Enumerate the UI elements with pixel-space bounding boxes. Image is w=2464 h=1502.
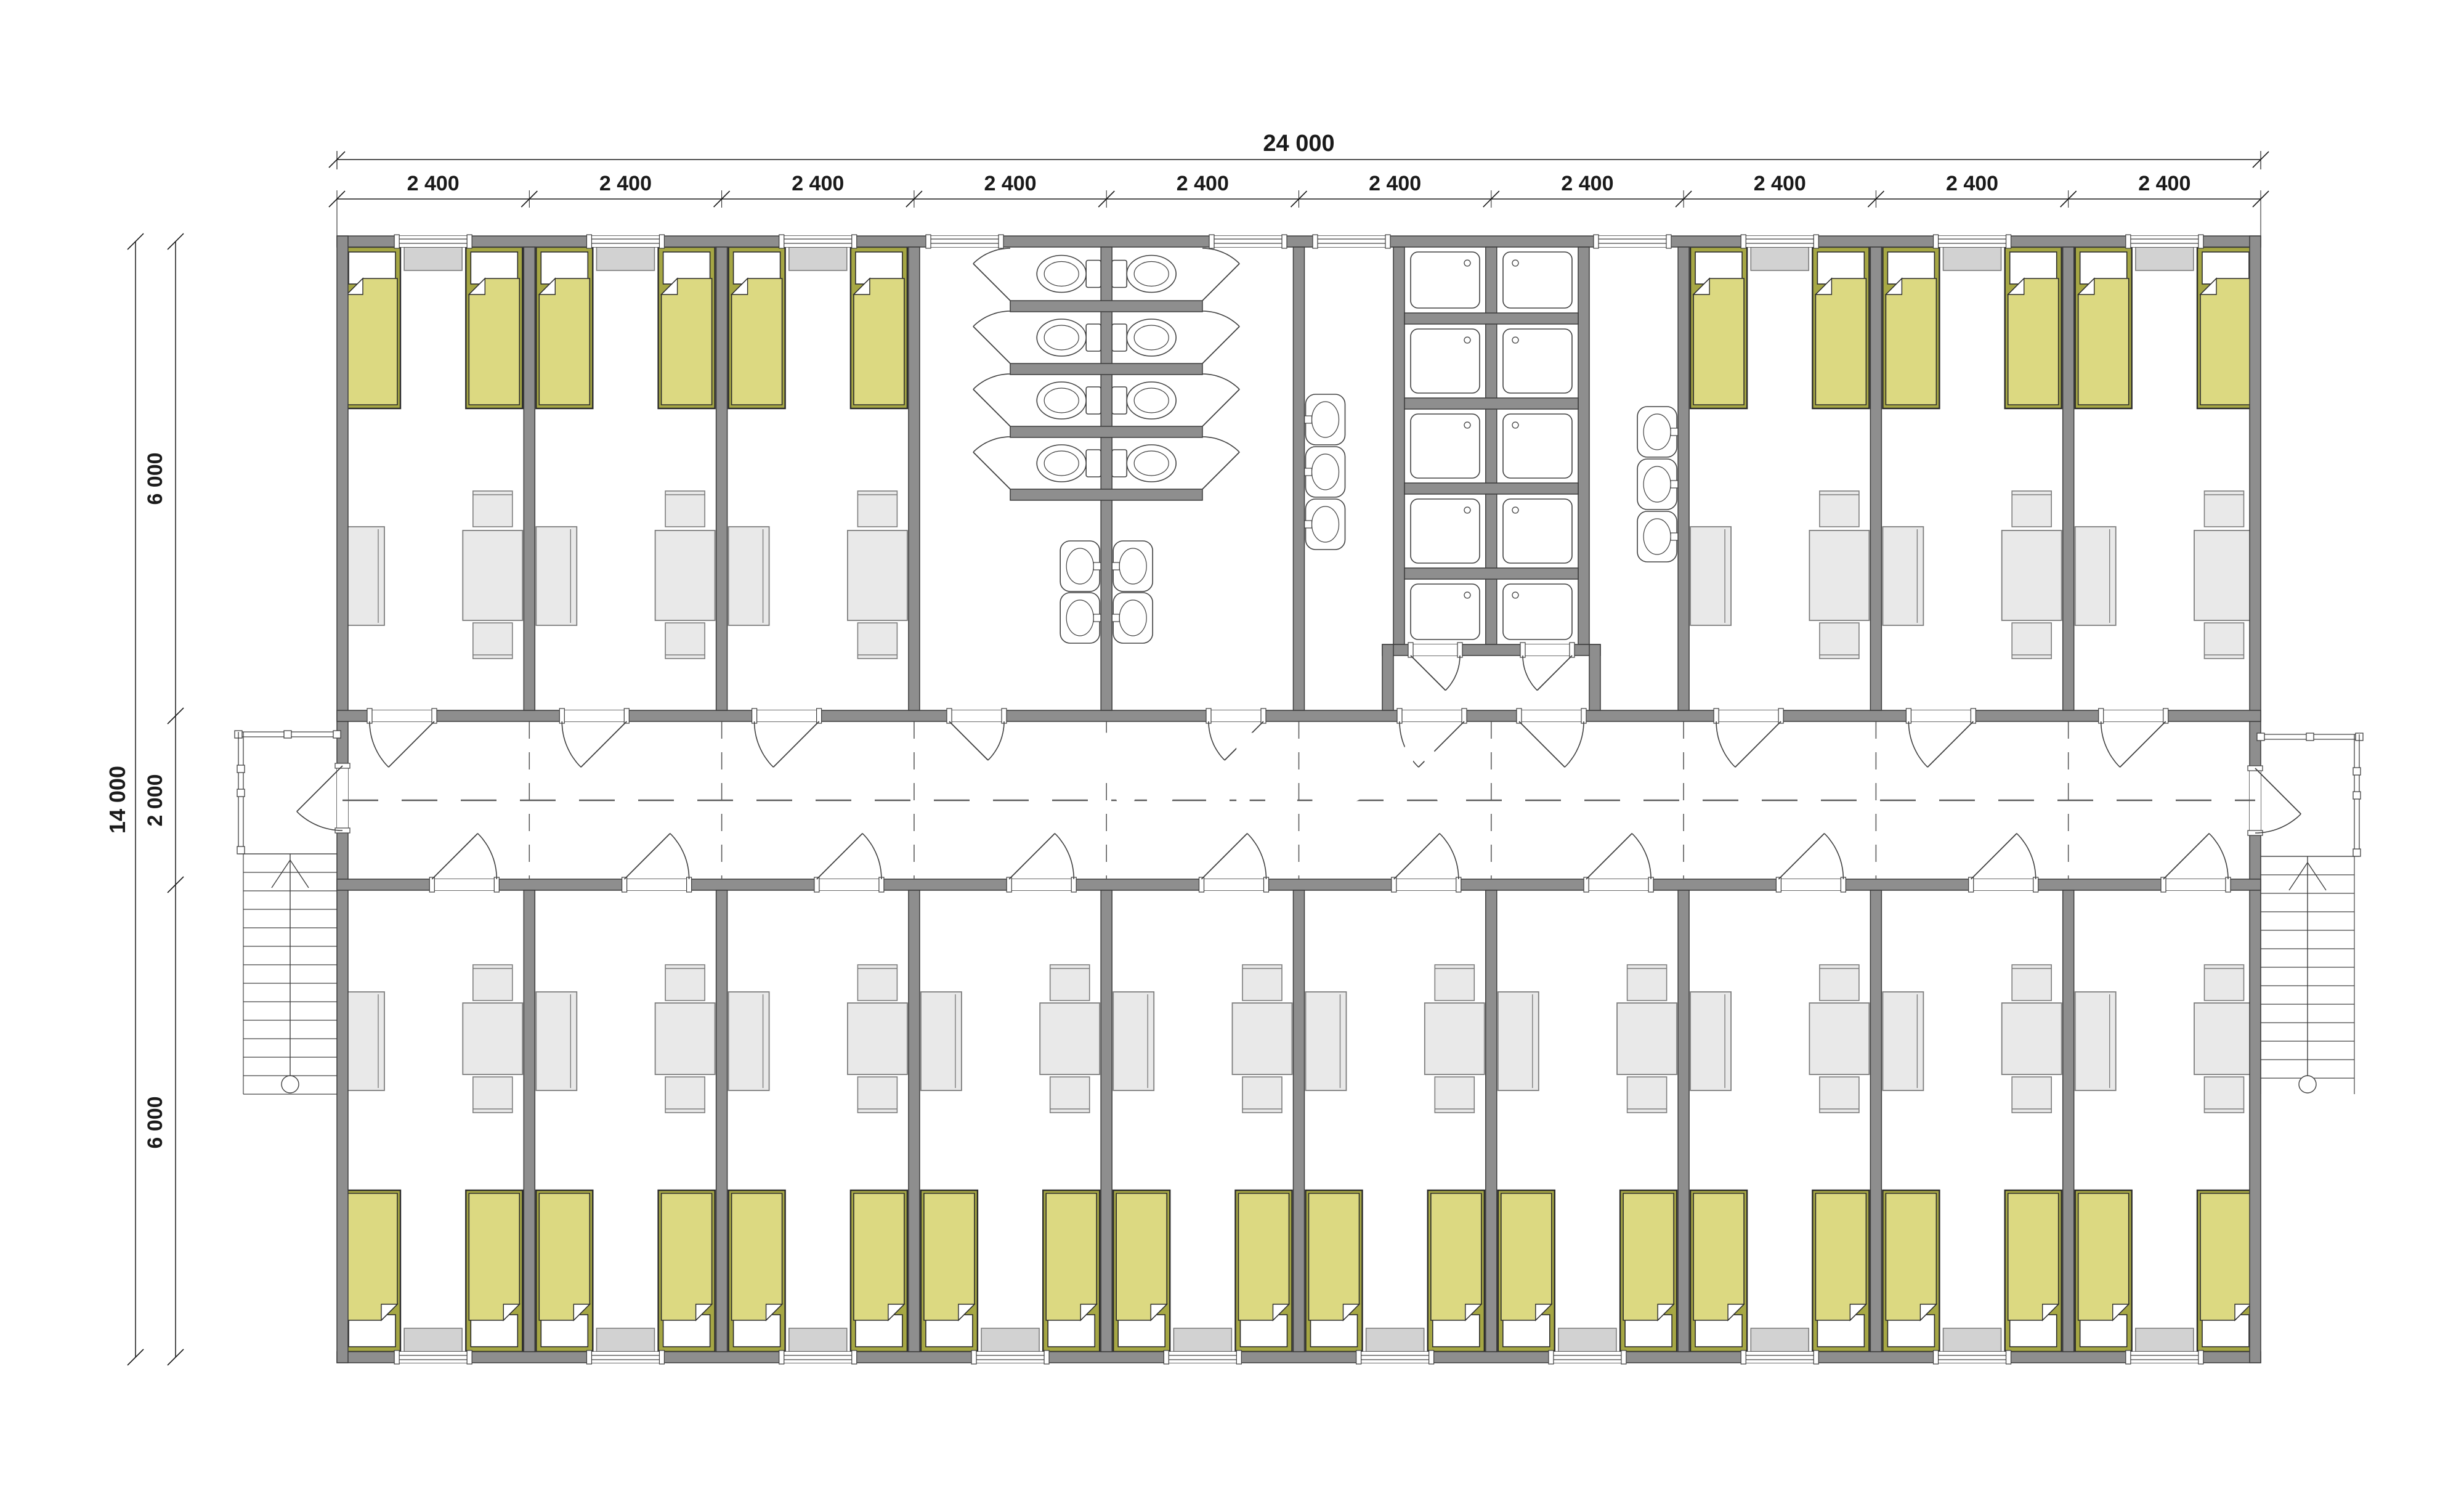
chair [857, 1077, 897, 1113]
toilet-cistern [1086, 387, 1101, 414]
bed-blanket [854, 278, 904, 405]
door-swing-arc [1247, 834, 1266, 879]
door-opening [1519, 710, 1584, 721]
window-cabinet [1751, 1328, 1809, 1352]
door-opening [1586, 879, 1651, 890]
table [463, 1003, 522, 1074]
door-jamb [926, 235, 931, 248]
door-leaf [389, 721, 434, 767]
dimension-label-module: 2 400 [599, 172, 652, 195]
chair [1627, 1077, 1667, 1113]
door-swing-arc [755, 721, 774, 767]
window-opening [1596, 236, 1669, 247]
washbasin-faucet [1093, 614, 1101, 622]
door-jamb [432, 708, 437, 723]
window-opening [2128, 236, 2201, 247]
chair [473, 965, 513, 1001]
door-leaf [973, 389, 1010, 426]
railing-post [237, 846, 245, 854]
door-swing-arc [973, 374, 1010, 389]
table [1809, 1003, 1869, 1074]
shower-drain [1464, 337, 1470, 343]
toilet-cistern [1112, 324, 1127, 351]
shower-spine-wall [1486, 247, 1497, 644]
dimension-label-segment: 6 000 [144, 1096, 167, 1148]
shower-drain [1512, 337, 1518, 343]
bed-blanket [2200, 1193, 2251, 1320]
bed-blanket [1116, 1193, 1167, 1320]
door-opening [1411, 644, 1460, 656]
door-jamb [1741, 235, 1746, 248]
door-leaf [1202, 389, 1239, 426]
door-jamb [1397, 708, 1402, 723]
floor-plan-drawing: 24 0002 4002 4002 4002 4002 4002 4002 40… [0, 0, 2464, 1502]
dimension-label-segment: 2 000 [144, 774, 167, 826]
bed-blanket [2008, 278, 2059, 405]
door-opening [2163, 879, 2228, 890]
door-jamb [1282, 235, 1287, 248]
shower-stall-wall [1404, 568, 1578, 579]
bed-blanket [1239, 1193, 1289, 1320]
partition-wall-top-band [2063, 247, 2074, 710]
window-cabinet [1751, 247, 1809, 270]
bed-blanket [732, 1193, 782, 1320]
table [1425, 1003, 1485, 1074]
door-swing-arc [670, 834, 689, 879]
door-leaf [1778, 834, 1824, 879]
door-leaf [1394, 834, 1440, 879]
door-opening [1009, 879, 1074, 890]
door-swing-arc [973, 437, 1010, 452]
door-opening [817, 879, 881, 890]
door-jamb [2006, 1350, 2011, 1364]
door-leaf [625, 834, 670, 879]
bed-blanket [347, 278, 397, 405]
door-jamb [1666, 235, 1671, 248]
door-jamb [2099, 708, 2104, 723]
railing-post [2353, 792, 2361, 799]
door-leaf [1519, 721, 1565, 767]
door-swing-arc [1825, 834, 1844, 879]
washbasin-faucet [1305, 468, 1312, 476]
door-leaf [1971, 834, 2017, 879]
partition-wall-bottom-band [716, 890, 727, 1352]
window-cabinet [596, 247, 654, 270]
window-cabinet [2136, 247, 2194, 270]
window-cabinet [404, 1328, 462, 1352]
door-jamb [1570, 643, 1574, 657]
door-opening [337, 766, 348, 830]
window-opening [974, 1352, 1047, 1363]
window-opening [589, 1352, 662, 1363]
door-jamb [852, 1350, 857, 1364]
dimension-label-module: 2 400 [1946, 172, 1998, 195]
bed-blanket [732, 278, 782, 405]
door-jamb [687, 877, 692, 892]
door-jamb [1261, 708, 1266, 723]
partition-wall-top-band [1294, 247, 1305, 710]
door-jamb [1594, 235, 1599, 248]
door-jamb [1236, 1350, 1241, 1364]
chair [1820, 491, 1859, 527]
railing-post [237, 789, 245, 797]
door-jamb [1714, 708, 1719, 723]
bed-blanket [2008, 1193, 2059, 1320]
chair [857, 491, 897, 527]
door-jamb [1002, 708, 1007, 723]
door-jamb [1814, 235, 1818, 248]
dimension-label-module: 2 400 [792, 172, 844, 195]
door-opening [1523, 644, 1572, 656]
dimension-label-module: 2 400 [984, 172, 1037, 195]
door-swing-arc [1202, 248, 1239, 264]
window-cabinet [596, 1328, 654, 1352]
chair [665, 491, 705, 527]
door-jamb [659, 1350, 664, 1364]
table [1809, 530, 1869, 620]
chair [1820, 623, 1859, 659]
railing-post [2306, 733, 2314, 741]
table [1040, 1003, 1100, 1074]
door-opening [562, 710, 626, 721]
window-cabinet [1173, 1328, 1231, 1352]
chair [665, 623, 705, 659]
washbasin-faucet [1112, 614, 1119, 622]
door-opening [1400, 710, 1464, 721]
door-swing-arc [973, 248, 1010, 264]
door-jamb [1906, 708, 1911, 723]
table [2194, 530, 2254, 620]
door-jamb [622, 877, 627, 892]
door-opening [949, 710, 1004, 721]
chair [1242, 1077, 1282, 1113]
chair [473, 491, 513, 527]
bed-blanket [1886, 278, 1936, 405]
stair-direction-arrow [2289, 863, 2308, 890]
stair-start-marker [282, 1076, 299, 1093]
door-jamb [817, 708, 822, 723]
door-jamb [1520, 643, 1525, 657]
bed-blanket [1815, 1193, 1866, 1320]
stair-start-marker [2299, 1076, 2316, 1093]
door-jamb [971, 1350, 976, 1364]
chair [2012, 965, 2051, 1001]
window-opening [1315, 236, 1388, 247]
table [2002, 1003, 2062, 1074]
toilet-cistern [1086, 324, 1101, 351]
chair [473, 623, 513, 659]
railing-post [333, 731, 341, 738]
door-jamb [1408, 643, 1413, 657]
dimension-label-module: 2 400 [1369, 172, 1421, 195]
chair [2012, 491, 2051, 527]
stair-direction-arrow [2308, 863, 2326, 890]
door-jamb [494, 877, 499, 892]
door-jamb [1462, 708, 1467, 723]
door-jamb [1385, 235, 1390, 248]
dimension-label-segment: 6 000 [144, 452, 167, 505]
door-opening [432, 879, 496, 890]
door-leaf [2120, 721, 2165, 767]
door-jamb [1648, 877, 1653, 892]
door-leaf [1735, 721, 1781, 767]
door-jamb [1392, 877, 1396, 892]
bed-blanket [469, 278, 519, 405]
chair [857, 965, 897, 1001]
bed-blanket [1815, 278, 1866, 405]
door-jamb [367, 708, 372, 723]
door-jamb [586, 235, 591, 248]
door-swing-arc [2101, 721, 2120, 767]
toilet-cistern [1112, 387, 1127, 414]
door-swing-arc [1523, 656, 1537, 691]
chair [1435, 1077, 1474, 1113]
door-jamb [1517, 708, 1522, 723]
partition-wall-bottom-band [1294, 890, 1305, 1352]
table [1617, 1003, 1677, 1074]
door-swing-arc [562, 721, 581, 767]
partition-wall-bottom-band [909, 890, 920, 1352]
door-swing-arc [1446, 656, 1460, 691]
window-opening [397, 1352, 469, 1363]
door-swing-arc [2255, 814, 2301, 833]
toilet-cistern [1112, 450, 1127, 477]
shower-stall-wall [1404, 398, 1578, 409]
door-jamb [2126, 1350, 2131, 1364]
shower-vestibule-wall [1382, 644, 1393, 710]
window-cabinet [1366, 1328, 1424, 1352]
dimension-label-module: 2 400 [1754, 172, 1806, 195]
bed-blanket [469, 1193, 519, 1320]
partition-wall-bottom-band [1486, 890, 1497, 1352]
bed-blanket [854, 1193, 904, 1320]
door-jamb [1044, 1350, 1049, 1364]
door-swing-arc [1716, 721, 1735, 767]
partition-wall-top-band [524, 247, 535, 710]
table [655, 530, 715, 620]
door-jamb [1934, 235, 1939, 248]
door-jamb [1778, 708, 1783, 723]
table [848, 1003, 907, 1074]
door-jamb [1071, 877, 1076, 892]
door-leaf [1586, 834, 1632, 879]
door-swing-arc [1908, 721, 1927, 767]
bed-blanket [662, 1193, 712, 1320]
door-jamb [659, 235, 664, 248]
door-swing-arc [1440, 834, 1459, 879]
shower-drain [1464, 260, 1470, 266]
partition-wall-top-band [1870, 247, 1881, 710]
partition-wall-bottom-band [2063, 890, 2074, 1352]
door-jamb [2199, 235, 2203, 248]
door-swing-arc [1202, 437, 1239, 452]
door-swing-arc [1055, 834, 1074, 879]
door-leaf [1927, 721, 1973, 767]
door-jamb [1264, 877, 1269, 892]
door-jamb [852, 235, 857, 248]
door-jamb [1814, 1350, 1818, 1364]
door-jamb [752, 708, 757, 723]
washbasin-faucet [1305, 416, 1312, 423]
bed-blanket [1431, 1193, 1481, 1320]
door-jamb [1457, 643, 1462, 657]
bed-blanket [1693, 278, 1744, 405]
window-opening [1551, 1352, 1624, 1363]
washbasin-faucet [1093, 562, 1101, 570]
door-jamb [1969, 877, 1974, 892]
door-jamb [1007, 877, 1011, 892]
railing-post [237, 765, 245, 773]
door-leaf [1009, 834, 1055, 879]
window-cabinet [1943, 1328, 2001, 1352]
door-leaf [1537, 656, 1572, 691]
chair [1050, 1077, 1090, 1113]
door-opening [1778, 879, 1843, 890]
door-jamb [1356, 1350, 1361, 1364]
table [2194, 1003, 2254, 1074]
toilet-cistern [1086, 450, 1101, 477]
window-opening [589, 236, 662, 247]
door-jamb [1549, 1350, 1554, 1364]
door-leaf [817, 834, 862, 879]
chair [2205, 491, 2244, 527]
window-opening [1166, 1352, 1239, 1363]
door-jamb [1621, 1350, 1626, 1364]
door-leaf [1202, 264, 1239, 301]
door-jamb [1206, 708, 1211, 723]
partition-wall-bottom-band [1101, 890, 1112, 1352]
window-cabinet [789, 1328, 847, 1352]
shower-drain [1464, 422, 1470, 428]
door-leaf [432, 834, 477, 879]
chair [2205, 623, 2244, 659]
door-jamb [1584, 877, 1589, 892]
door-jamb [1934, 1350, 1939, 1364]
door-jamb [1581, 708, 1586, 723]
window-opening [782, 236, 854, 247]
door-jamb [1164, 1350, 1169, 1364]
door-swing-arc [973, 311, 1010, 327]
door-swing-arc [862, 834, 881, 879]
shower-vestibule-wall [1589, 644, 1600, 710]
door-opening [1209, 710, 1263, 721]
door-jamb [2161, 877, 2166, 892]
window-cabinet [1558, 1328, 1616, 1352]
door-jamb [814, 877, 819, 892]
floor-plan-canvas: 24 0002 4002 4002 4002 4002 4002 4002 40… [0, 0, 2464, 1502]
door-swing-arc [1202, 374, 1239, 389]
partition-wall-top-band [1101, 247, 1112, 710]
door-jamb [1199, 877, 1204, 892]
bed-blanket [347, 1193, 397, 1320]
door-leaf [973, 264, 1010, 301]
door-leaf [1411, 656, 1446, 691]
shower-drain [1512, 507, 1518, 513]
door-jamb [2033, 877, 2038, 892]
door-opening [1908, 710, 1973, 721]
window-opening [1936, 236, 2009, 247]
chair [1242, 965, 1282, 1001]
door-jamb [586, 1350, 591, 1364]
door-jamb [1841, 877, 1846, 892]
bed-blanket [2078, 1193, 2129, 1320]
chair [665, 1077, 705, 1113]
table [848, 530, 907, 620]
window-cabinet [2136, 1328, 2194, 1352]
door-jamb [1741, 1350, 1746, 1364]
bed-blanket [1309, 1193, 1360, 1320]
door-swing-arc [1209, 721, 1225, 760]
chair [2012, 1077, 2051, 1113]
stair-direction-arrow [272, 860, 290, 888]
shower-drain [1512, 422, 1518, 428]
bed-blanket [1886, 1193, 1936, 1320]
door-jamb [1313, 235, 1318, 248]
partition-wall-bottom-band [1678, 890, 1689, 1352]
chair [473, 1077, 513, 1113]
chair [2205, 965, 2244, 1001]
chair [1627, 965, 1667, 1001]
bed-blanket [1693, 1193, 1744, 1320]
door-jamb [2126, 235, 2131, 248]
bed-blanket [1623, 1193, 1674, 1320]
door-jamb [559, 708, 564, 723]
door-leaf [1419, 721, 1464, 767]
dimension-label-module: 2 400 [1177, 172, 1229, 195]
window-cabinet [1943, 247, 2001, 270]
door-jamb [1971, 708, 1976, 723]
door-jamb [2199, 1350, 2203, 1364]
table [655, 1003, 715, 1074]
dimension-label-total-width: 24 000 [1263, 131, 1334, 156]
partition-wall-top-band [716, 247, 727, 710]
door-jamb [2163, 708, 2168, 723]
bed-blanket [2078, 278, 2129, 405]
door-jamb [2006, 235, 2011, 248]
chair [1050, 965, 1090, 1001]
dimension-label-module: 2 400 [2138, 172, 2190, 195]
wc-stall-wall [1010, 426, 1202, 437]
chair [2205, 1077, 2244, 1113]
door-opening [370, 710, 434, 721]
door-opening [1971, 879, 2036, 890]
partition-wall-top-band [1678, 247, 1689, 710]
door-leaf [1202, 452, 1239, 489]
chair [1820, 1077, 1859, 1113]
door-jamb [394, 235, 399, 248]
door-leaf [773, 721, 819, 767]
door-jamb [779, 1350, 784, 1364]
door-jamb [879, 877, 884, 892]
bed-blanket [924, 1193, 975, 1320]
window-opening [928, 236, 1001, 247]
window-opening [782, 1352, 854, 1363]
door-swing-arc [2209, 834, 2228, 879]
washbasin-faucet [1305, 521, 1312, 528]
door-jamb [624, 708, 629, 723]
shower-stall-wall [1404, 313, 1578, 324]
bed-blanket [1046, 1193, 1096, 1320]
shower-drain [1464, 592, 1470, 598]
toilet-cistern [1086, 261, 1101, 288]
window-opening [1743, 236, 1816, 247]
window-opening [1212, 236, 1284, 247]
shower-block-wall [1578, 247, 1589, 644]
washbasin-faucet [1112, 562, 1119, 570]
door-jamb [947, 708, 952, 723]
partition-wall-top-band [909, 247, 920, 710]
door-leaf [1202, 834, 1247, 879]
